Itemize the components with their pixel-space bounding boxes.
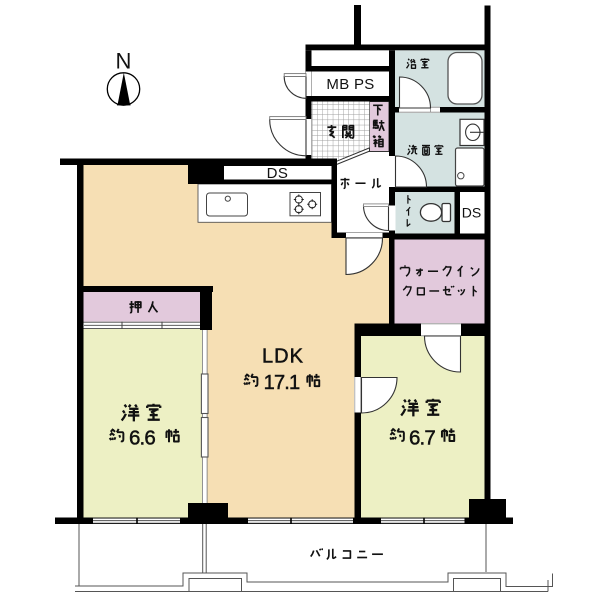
- svg-text:MB PS: MB PS: [326, 76, 374, 93]
- svg-text:6.7: 6.7: [409, 427, 435, 450]
- svg-text:LDK: LDK: [262, 346, 304, 368]
- svg-text:DS: DS: [267, 165, 289, 182]
- svg-text:6.6: 6.6: [129, 427, 155, 450]
- svg-text:17.1: 17.1: [264, 372, 300, 394]
- svg-text:N: N: [116, 49, 132, 74]
- svg-text:DS: DS: [462, 205, 481, 221]
